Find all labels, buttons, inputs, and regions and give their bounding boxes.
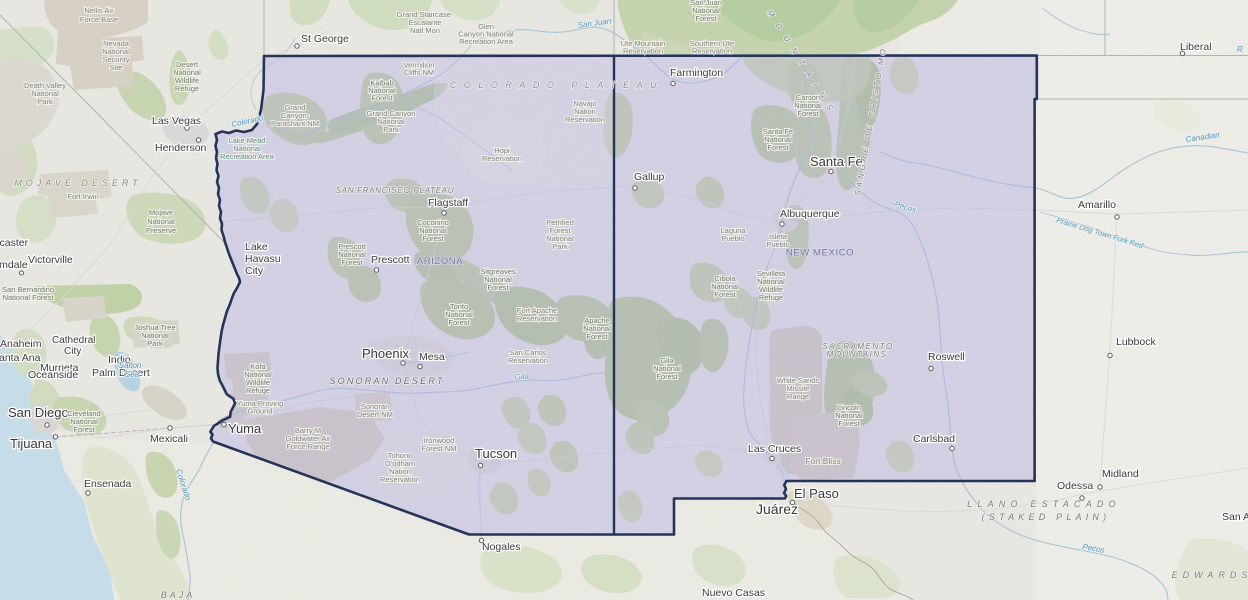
svg-text:SONORAN DESERT: SONORAN DESERT	[329, 376, 444, 386]
svg-text:Pueblo: Pueblo	[721, 234, 744, 243]
svg-text:Parashant NM: Parashant NM	[271, 119, 319, 128]
svg-text:Force Range: Force Range	[286, 442, 329, 451]
svg-text:Reservation: Reservation	[565, 115, 605, 124]
svg-text:Ensenada: Ensenada	[84, 478, 131, 490]
svg-text:Forest: Forest	[73, 425, 95, 434]
svg-text:St George: St George	[301, 33, 349, 45]
svg-text:Yuma: Yuma	[228, 421, 262, 436]
svg-text:Gila: Gila	[514, 371, 530, 381]
svg-text:Forest: Forest	[586, 332, 608, 341]
svg-text:Range: Range	[787, 392, 809, 401]
svg-text:Forest: Forest	[656, 372, 678, 381]
svg-text:Las Vegas: Las Vegas	[152, 115, 201, 127]
svg-text:Fort Bliss: Fort Bliss	[805, 456, 840, 466]
svg-text:Forest: Forest	[714, 290, 736, 299]
svg-text:Oceanside: Oceanside	[28, 369, 78, 381]
svg-text:Nuevo Casas: Nuevo Casas	[702, 587, 765, 599]
svg-text:Midland: Midland	[1102, 468, 1139, 480]
svg-text:Gallup: Gallup	[634, 171, 665, 183]
svg-text:Santa Fe: Santa Fe	[810, 154, 863, 169]
svg-text:Forest: Forest	[422, 234, 444, 243]
svg-text:Anaheim: Anaheim	[0, 338, 42, 350]
svg-text:Refuge: Refuge	[759, 293, 783, 302]
svg-text:Mesa: Mesa	[419, 351, 445, 363]
svg-text:Las Cruces: Las Cruces	[748, 443, 801, 455]
svg-text:Reservation: Reservation	[482, 154, 522, 163]
svg-text:Juárez: Juárez	[756, 501, 798, 517]
svg-text:Forest: Forest	[797, 109, 819, 118]
svg-text:Force Base: Force Base	[80, 15, 118, 24]
svg-text:R: R	[1237, 45, 1243, 54]
svg-text:Salton: Salton	[119, 361, 142, 370]
svg-text:Farmington: Farmington	[670, 67, 723, 79]
svg-text:Nogales: Nogales	[482, 541, 521, 553]
svg-text:Flagstaff: Flagstaff	[428, 197, 468, 209]
svg-text:Amarillo: Amarillo	[1078, 199, 1116, 211]
svg-text:Cathedral: Cathedral	[52, 335, 95, 346]
svg-text:Refuge: Refuge	[246, 386, 270, 395]
svg-text:Albuquerque: Albuquerque	[780, 208, 840, 220]
svg-text:Phoenix: Phoenix	[362, 346, 409, 361]
svg-text:Recreation Area: Recreation Area	[220, 152, 275, 161]
svg-text:MOUNTAINS: MOUNTAINS	[827, 350, 888, 359]
svg-text:Mexicali: Mexicali	[150, 433, 188, 445]
svg-text:Natl Mon: Natl Mon	[410, 26, 440, 35]
svg-text:Prescott: Prescott	[371, 254, 410, 266]
svg-text:Lancaster: Lancaster	[0, 237, 29, 249]
svg-text:Nellis Air: Nellis Air	[84, 6, 114, 15]
svg-text:City: City	[245, 265, 264, 277]
svg-text:Tijuana: Tijuana	[10, 436, 53, 451]
svg-text:Forest NM: Forest NM	[421, 444, 456, 453]
svg-text:Mojave: Mojave	[149, 208, 173, 217]
svg-text:Desert NM: Desert NM	[357, 410, 393, 419]
svg-text:Odessa: Odessa	[1057, 480, 1093, 492]
svg-text:Cliffs NM: Cliffs NM	[404, 68, 434, 77]
svg-text:(STAKED PLAIN): (STAKED PLAIN)	[982, 512, 1111, 522]
svg-text:National: National	[147, 217, 175, 226]
svg-text:San Ang: San Ang	[1222, 511, 1248, 523]
svg-text:SAN FRANCISCO PLATEAU: SAN FRANCISCO PLATEAU	[336, 186, 455, 195]
svg-text:Forest: Forest	[838, 419, 860, 428]
svg-text:NEW MEXICO: NEW MEXICO	[786, 248, 854, 259]
svg-text:City: City	[64, 346, 81, 357]
svg-text:San Diego: San Diego	[8, 405, 69, 420]
svg-text:Reservation: Reservation	[517, 314, 557, 323]
svg-text:EDWARDS: EDWARDS	[1172, 570, 1248, 580]
svg-text:Palmdale: Palmdale	[0, 259, 28, 271]
svg-text:Reservation: Reservation	[380, 475, 420, 484]
svg-text:Forest: Forest	[487, 283, 509, 292]
svg-text:Havasu: Havasu	[245, 253, 281, 265]
svg-text:Forest: Forest	[371, 94, 393, 103]
svg-text:Ground: Ground	[247, 407, 272, 416]
svg-text:Forest: Forest	[767, 143, 789, 152]
svg-text:MOJAVE DESERT: MOJAVE DESERT	[14, 178, 141, 188]
svg-text:Victorville: Victorville	[28, 254, 73, 266]
svg-text:LLANO ESTACADO: LLANO ESTACADO	[967, 499, 1121, 509]
svg-text:Pueblo: Pueblo	[766, 240, 789, 249]
svg-text:Lubbock: Lubbock	[1116, 336, 1156, 348]
svg-text:Carlsbad: Carlsbad	[913, 433, 955, 445]
svg-text:National Forest: National Forest	[3, 293, 55, 302]
svg-text:Reservation: Reservation	[508, 356, 548, 365]
svg-text:El Paso: El Paso	[794, 486, 839, 501]
svg-text:COLORADO PLATEAU: COLORADO PLATEAU	[450, 80, 664, 90]
svg-text:Refuge: Refuge	[175, 84, 199, 93]
svg-text:Tucson: Tucson	[475, 446, 517, 461]
svg-text:Park: Park	[147, 339, 163, 348]
svg-text:Forest: Forest	[341, 258, 363, 267]
svg-text:Reservation: Reservation	[623, 47, 663, 56]
svg-text:Forest: Forest	[695, 14, 717, 23]
svg-text:Lake: Lake	[245, 241, 268, 253]
svg-text:Forest: Forest	[448, 318, 470, 327]
svg-text:Sea: Sea	[125, 370, 140, 379]
svg-text:Roswell: Roswell	[928, 351, 965, 363]
svg-text:Liberal: Liberal	[1180, 41, 1212, 53]
svg-text:BAJA: BAJA	[161, 590, 196, 600]
svg-text:Fort Irwin: Fort Irwin	[67, 192, 98, 201]
svg-text:Park: Park	[383, 125, 399, 134]
svg-text:Reservation: Reservation	[692, 47, 732, 56]
svg-text:Preserve: Preserve	[146, 226, 176, 235]
svg-text:Site: Site	[110, 63, 123, 72]
svg-text:Henderson: Henderson	[155, 142, 207, 154]
svg-text:Recreation Area: Recreation Area	[459, 37, 514, 46]
svg-text:Santa Ana: Santa Ana	[0, 352, 41, 364]
svg-text:Park: Park	[37, 97, 53, 106]
svg-text:Park: Park	[552, 242, 568, 251]
svg-text:ARIZONA: ARIZONA	[417, 256, 463, 267]
